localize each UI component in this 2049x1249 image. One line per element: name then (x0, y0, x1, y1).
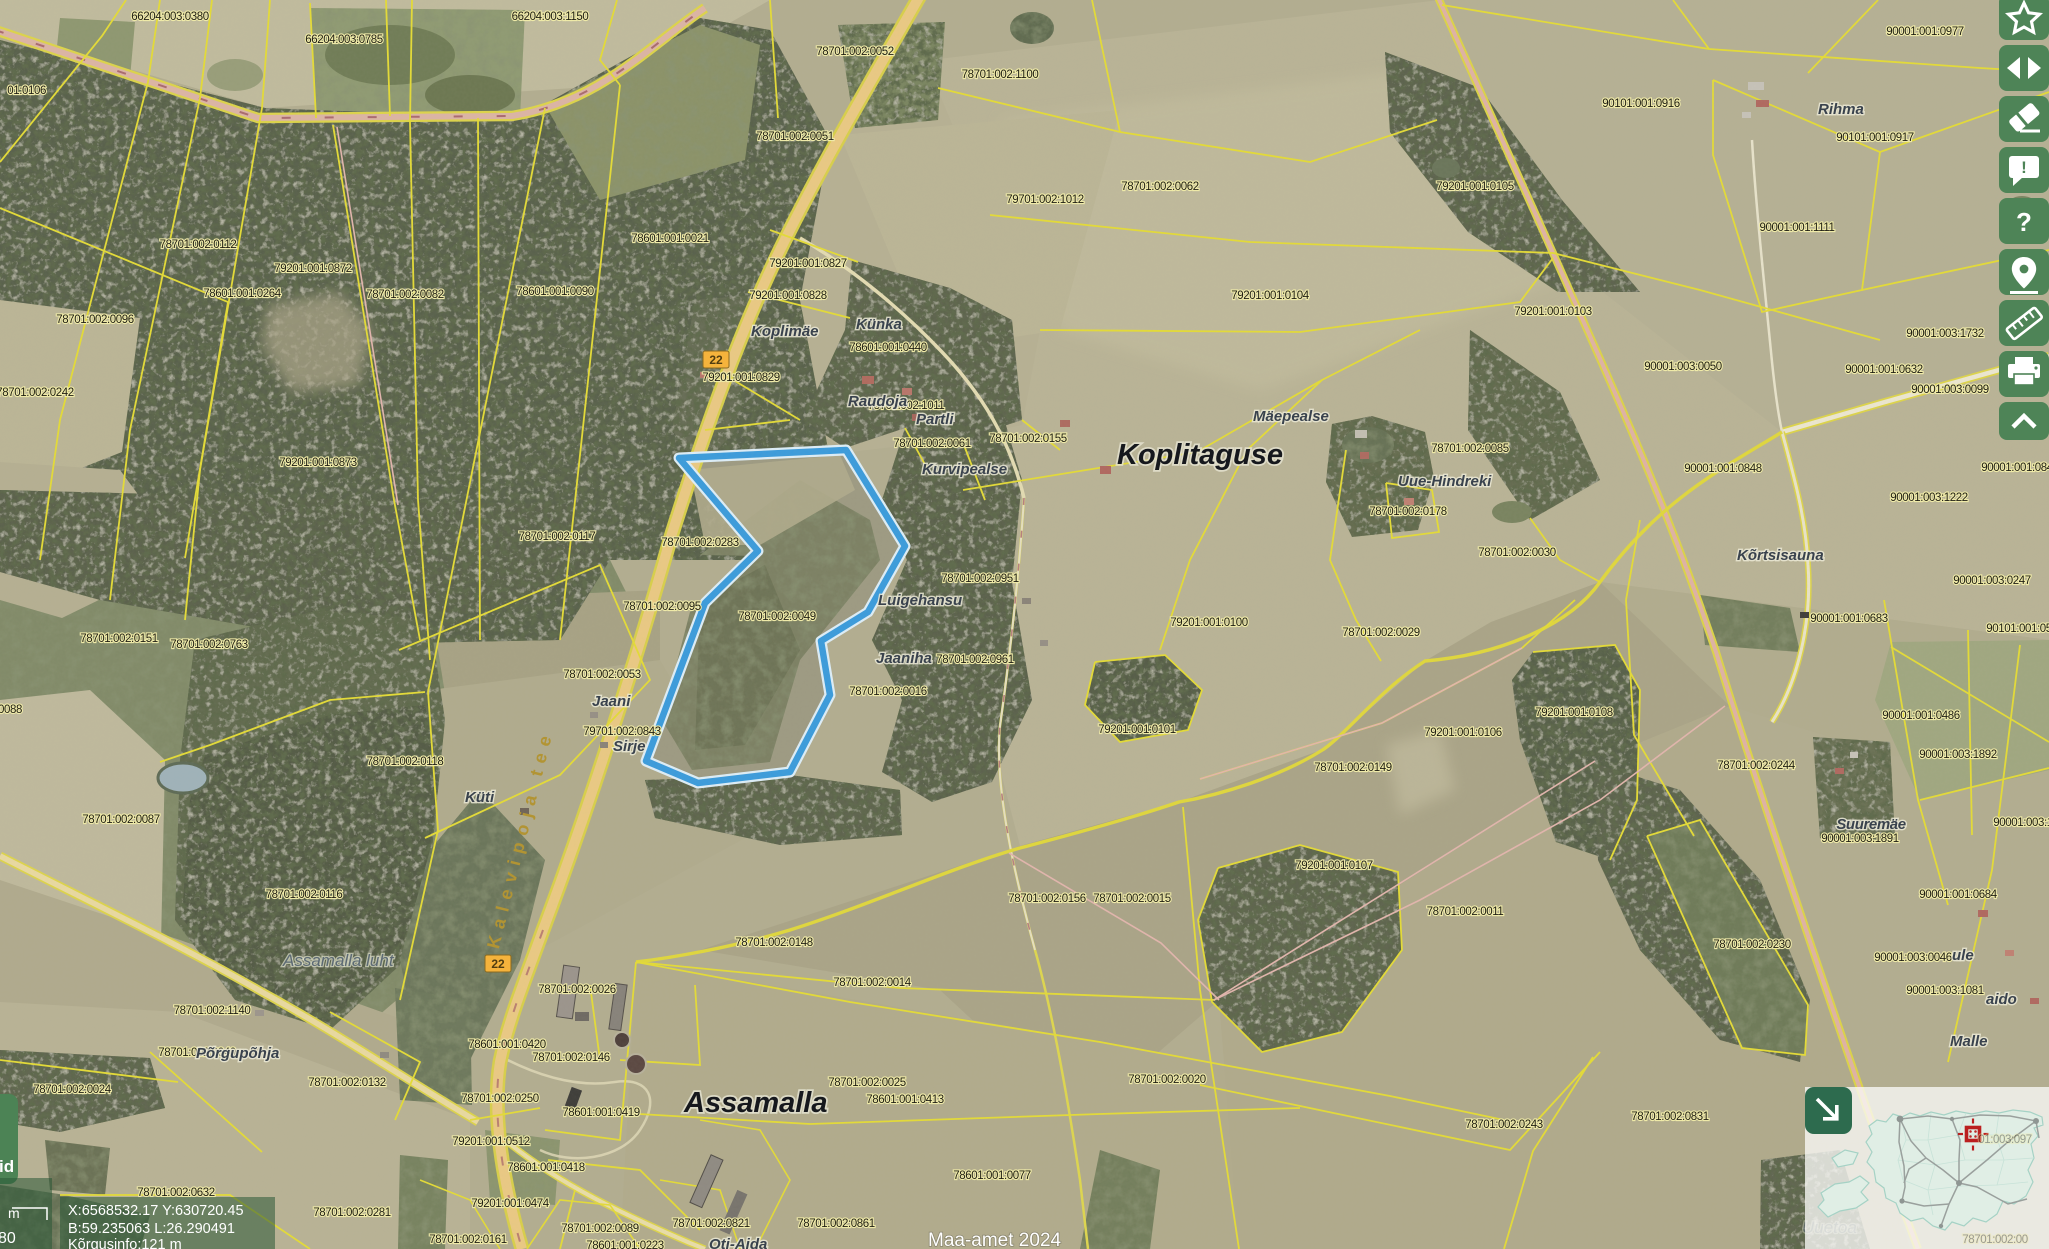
svg-text:78701:002:0155: 78701:002:0155 (989, 433, 1067, 445)
svg-text:90001:001:0977: 90001:001:0977 (1886, 26, 1964, 38)
svg-text:Malle: Malle (1950, 1033, 1988, 1050)
svg-text:90101:001:0556: 90101:001:0556 (1986, 623, 2049, 635)
svg-text:Koplitaguse: Koplitaguse (1117, 439, 1283, 471)
svg-text:78701:002:0095: 78701:002:0095 (623, 601, 701, 613)
svg-text:79201:001:0872: 79201:001:0872 (274, 263, 352, 275)
svg-text:78701:002:0087: 78701:002:0087 (82, 814, 160, 826)
svg-text:78701:002:0156: 78701:002:0156 (1008, 893, 1086, 905)
svg-text:78701:002:0082: 78701:002:0082 (366, 289, 444, 301)
svg-text:ule: ule (1952, 947, 1974, 964)
svg-text:78701:002:0026: 78701:002:0026 (538, 984, 616, 996)
svg-text:79201:001:0107: 79201:001:0107 (1295, 860, 1373, 872)
svg-text:90101:001:0916: 90101:001:0916 (1602, 98, 1680, 110)
svg-text:!: ! (2021, 158, 2027, 177)
svg-text:Jaani: Jaani (592, 693, 631, 710)
svg-text:79201:001:0828: 79201:001:0828 (749, 290, 827, 302)
svg-text:78601:001:0021: 78601:001:0021 (631, 233, 709, 245)
svg-text:78701:002:0951: 78701:002:0951 (941, 573, 1019, 585)
svg-text:22: 22 (491, 957, 505, 971)
svg-text:78701:002:0112: 78701:002:0112 (160, 239, 237, 251)
svg-text:78701:002:0020: 78701:002:0020 (1128, 1074, 1206, 1086)
svg-text:78701:002:0011: 78701:002:0011 (1427, 906, 1504, 918)
svg-text:78701:002:0861: 78701:002:0861 (797, 1218, 875, 1230)
svg-text:78701:002:0821: 78701:002:0821 (672, 1218, 750, 1230)
svg-text:78701:002:00: 78701:002:00 (1962, 1234, 2028, 1246)
svg-text:90001:003:1732: 90001:003:1732 (1906, 328, 1984, 340)
svg-text:66204:003:1150: 66204:003:1150 (512, 11, 589, 23)
svg-text:Põrgupõhja: Põrgupõhja (196, 1045, 279, 1062)
svg-text:90001:003:0046: 90001:003:0046 (1874, 952, 1952, 964)
svg-text:78701:002:0014: 78701:002:0014 (833, 977, 912, 989)
svg-text:90001:003:0050: 90001:003:0050 (1644, 361, 1722, 373)
svg-text:78701:002:0030: 78701:002:0030 (1478, 547, 1556, 559)
svg-text:66204:003:0380: 66204:003:0380 (131, 11, 209, 23)
svg-text:90001:001:0848: 90001:001:0848 (1684, 463, 1762, 475)
svg-text:78601:001:0090: 78601:001:0090 (516, 286, 594, 298)
svg-text:78701:002:0049: 78701:002:0049 (738, 611, 816, 623)
svg-text:79201:001:0100: 79201:001:0100 (1170, 617, 1248, 629)
svg-text:X:6568532.17 Y:630720.45: X:6568532.17 Y:630720.45 (68, 1203, 244, 1219)
svg-text:79201:001:0105: 79201:001:0105 (1436, 181, 1514, 193)
svg-text:78701:002:0763: 78701:002:0763 (170, 639, 248, 651)
svg-text:Uue-Hindreki: Uue-Hindreki (1398, 473, 1492, 490)
svg-text:90001:003:1082: 90001:003:1082 (1993, 817, 2049, 829)
svg-text:90101:001:0917: 90101:001:0917 (1836, 132, 1914, 144)
svg-text:?: ? (2016, 207, 2032, 237)
svg-text:78701:002:0132: 78701:002:0132 (308, 1077, 386, 1089)
svg-text:79201:001:0827: 79201:001:0827 (769, 258, 847, 270)
svg-text:78701:002:0053: 78701:002:0053 (563, 669, 641, 681)
svg-text:79701:002:1012: 79701:002:1012 (1006, 194, 1084, 206)
svg-text:Assamalla: Assamalla (683, 1087, 828, 1119)
svg-text:90001:003:1892: 90001:003:1892 (1919, 749, 1997, 761)
svg-text:78701:002:0085: 78701:002:0085 (1431, 443, 1509, 455)
svg-text:78601:001:0264: 78601:001:0264 (203, 288, 282, 300)
svg-text:79201:001:0108: 79201:001:0108 (1535, 707, 1613, 719)
svg-text:Oti-Aida: Oti-Aida (709, 1236, 767, 1249)
svg-text:Kõrtsisauna: Kõrtsisauna (1737, 547, 1824, 564)
svg-text:90001:003:0247: 90001:003:0247 (1953, 575, 2031, 587)
svg-text:78701:002:0244: 78701:002:0244 (1717, 760, 1796, 772)
svg-text:Luigehansu: Luigehansu (878, 592, 962, 609)
svg-text:78701:002:0016: 78701:002:0016 (849, 686, 927, 698)
svg-text:79701:002:0843: 79701:002:0843 (583, 726, 661, 738)
svg-text:Koplimäe: Koplimäe (751, 323, 819, 340)
svg-text:90001:003:1222: 90001:003:1222 (1890, 492, 1968, 504)
svg-text:B:59.235063 L:26.290491: B:59.235063 L:26.290491 (68, 1221, 235, 1237)
svg-text:79201:001:0104: 79201:001:0104 (1231, 290, 1310, 302)
svg-text:78601:001:0419: 78601:001:0419 (562, 1107, 640, 1119)
svg-text:78701:002:0161: 78701:002:0161 (429, 1234, 507, 1246)
svg-text:78701:002:0051: 78701:002:0051 (756, 131, 834, 143)
svg-text:Partli: Partli (916, 411, 954, 428)
svg-text:Mäepealse: Mäepealse (1253, 408, 1329, 425)
svg-text:Kõrgusinfo:121 m: Kõrgusinfo:121 m (68, 1237, 182, 1249)
svg-text:90001:001:0848: 90001:001:0848 (1981, 462, 2049, 474)
svg-text:Rihma: Rihma (1818, 101, 1864, 118)
svg-text:Maa-amet 2024: Maa-amet 2024 (928, 1230, 1062, 1249)
svg-text:79201:001:0829: 79201:001:0829 (702, 372, 780, 384)
svg-text:m: m (8, 1205, 20, 1221)
svg-text:78701:002:0178: 78701:002:0178 (1369, 506, 1447, 518)
svg-text:78601:001:0223: 78601:001:0223 (586, 1240, 664, 1249)
svg-text:78701:002:0230: 78701:002:0230 (1713, 939, 1791, 951)
svg-text:78601:001:0077: 78601:001:0077 (953, 1170, 1031, 1182)
svg-text:90001:001:0632: 90001:001:0632 (1845, 364, 1923, 376)
svg-text:78601:001:0420: 78601:001:0420 (468, 1039, 546, 1051)
svg-text:90001:001:1111: 90001:001:1111 (1760, 222, 1835, 234)
svg-text:78701:002:0146: 78701:002:0146 (532, 1052, 610, 1064)
svg-text:78701:002:0151: 78701:002:0151 (80, 633, 158, 645)
svg-text:78601:001:0440: 78601:001:0440 (849, 342, 927, 354)
svg-text:Raudoja: Raudoja (848, 393, 907, 410)
svg-text:01:003:097: 01:003:097 (1978, 1134, 2032, 1146)
svg-text:Suuremäe: Suuremäe (1836, 816, 1905, 833)
svg-text:78701:002:0089: 78701:002:0089 (561, 1223, 639, 1235)
svg-text:78701:002:0149: 78701:002:0149 (1314, 762, 1392, 774)
svg-text:78701:002:0148: 78701:002:0148 (735, 937, 813, 949)
svg-text:90001:001:0684: 90001:001:0684 (1919, 889, 1998, 901)
svg-text:78701:002:0831: 78701:002:0831 (1631, 1111, 1709, 1123)
svg-text:79201:001:0474: 79201:001:0474 (471, 1198, 550, 1210)
svg-text:79201:001:0101: 79201:001:0101 (1098, 724, 1176, 736)
svg-text:01:0106: 01:0106 (7, 85, 46, 97)
svg-text:78701:002:0250: 78701:002:0250 (461, 1093, 539, 1105)
svg-text:78701:002:0024: 78701:002:0024 (33, 1084, 112, 1096)
svg-text:78701:002:0015: 78701:002:0015 (1093, 893, 1171, 905)
svg-text:78701:002:0061: 78701:002:0061 (893, 438, 971, 450)
svg-text:90001:003:1081: 90001:003:1081 (1906, 985, 1984, 997)
svg-text:Küti: Küti (465, 789, 495, 806)
svg-text:78701:002:0283: 78701:002:0283 (661, 537, 739, 549)
svg-text:Sirje: Sirje (613, 738, 646, 755)
svg-text:80: 80 (0, 1230, 16, 1247)
svg-text:Kurvipealse: Kurvipealse (922, 461, 1007, 478)
svg-text:79201:001:0103: 79201:001:0103 (1514, 306, 1592, 318)
svg-text:78701:002:1140: 78701:002:1140 (174, 1005, 251, 1017)
svg-text:002:0088: 002:0088 (0, 704, 22, 716)
svg-text:id: id (0, 1157, 14, 1176)
svg-text:78701:002:0062: 78701:002:0062 (1121, 181, 1199, 193)
svg-text:78701:002:0096: 78701:002:0096 (56, 314, 134, 326)
svg-text:78701:002:0243: 78701:002:0243 (1465, 1119, 1543, 1131)
svg-text:Jaaniha: Jaaniha (876, 650, 932, 667)
svg-text:78701:002:0961: 78701:002:0961 (936, 654, 1014, 666)
svg-text:78701:002:0242: 78701:002:0242 (0, 387, 74, 399)
svg-text:78701:002:0029: 78701:002:0029 (1342, 627, 1420, 639)
svg-text:90001:003:0099: 90001:003:0099 (1911, 384, 1989, 396)
svg-text:22: 22 (709, 353, 723, 367)
svg-text:78601:001:0413: 78601:001:0413 (866, 1094, 944, 1106)
svg-text:79201:001:0873: 79201:001:0873 (279, 457, 357, 469)
svg-text:78701:002:0116: 78701:002:0116 (266, 889, 343, 901)
svg-text:aido: aido (1986, 991, 2017, 1008)
svg-text:90001:001:0683: 90001:001:0683 (1810, 613, 1888, 625)
svg-text:78701:002:0117: 78701:002:0117 (519, 531, 596, 543)
svg-text:90001:003:1891: 90001:003:1891 (1821, 833, 1899, 845)
svg-text:78701:002:0281: 78701:002:0281 (313, 1207, 391, 1219)
svg-text:79201:001:0512: 79201:001:0512 (452, 1136, 530, 1148)
svg-text:78701:002:1100: 78701:002:1100 (962, 69, 1039, 81)
svg-text:78601:001:0418: 78601:001:0418 (507, 1162, 585, 1174)
svg-text:78701:002:0118: 78701:002:0118 (367, 756, 444, 768)
svg-text:78701:002:0025: 78701:002:0025 (828, 1077, 906, 1089)
svg-text:79201:001:0106: 79201:001:0106 (1424, 727, 1502, 739)
svg-text:66204:003:0785: 66204:003:0785 (305, 34, 383, 46)
svg-text:78701:002:0052: 78701:002:0052 (816, 46, 894, 58)
svg-text:Künka: Künka (856, 316, 902, 333)
svg-text:Assamalla luht: Assamalla luht (282, 951, 395, 970)
svg-text:90001:001:0486: 90001:001:0486 (1882, 710, 1960, 722)
